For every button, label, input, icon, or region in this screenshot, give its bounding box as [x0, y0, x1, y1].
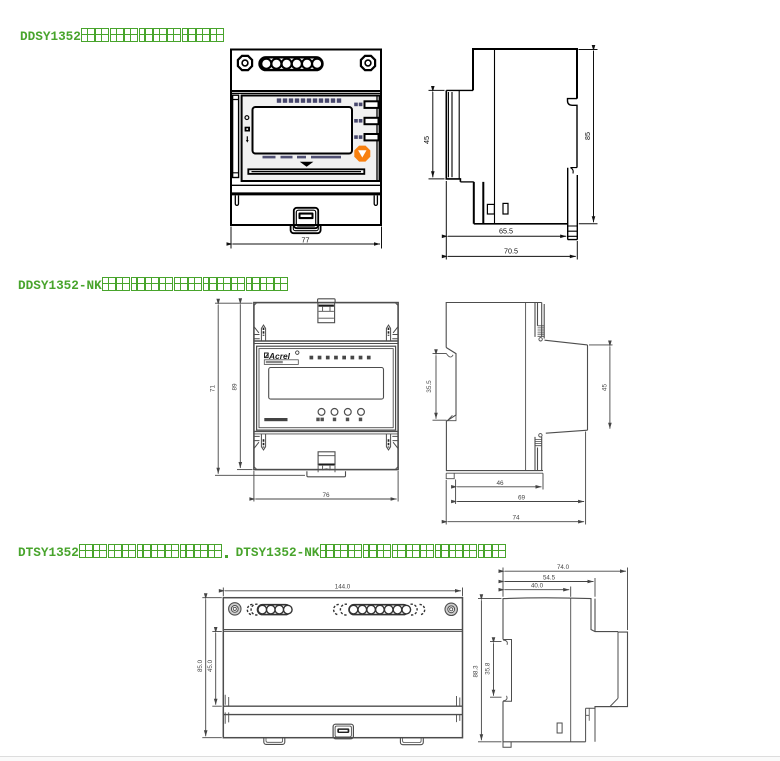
svg-text:46: 46 — [496, 480, 504, 487]
svg-text:85.0: 85.0 — [197, 659, 204, 672]
svg-text:88.3: 88.3 — [472, 665, 479, 678]
svg-text:45: 45 — [422, 136, 431, 144]
svg-text:77: 77 — [302, 236, 310, 245]
svg-text:54.5: 54.5 — [543, 574, 556, 581]
svg-text:74: 74 — [512, 515, 520, 522]
svg-text:35.5: 35.5 — [426, 380, 433, 393]
svg-text:69: 69 — [518, 495, 526, 502]
svg-text:76: 76 — [322, 492, 330, 499]
svg-text:35.8: 35.8 — [485, 662, 492, 675]
svg-text:70.5: 70.5 — [504, 247, 518, 256]
svg-text:85: 85 — [583, 132, 592, 140]
svg-text:45: 45 — [601, 384, 608, 392]
svg-text:74.0: 74.0 — [557, 564, 570, 571]
svg-text:144.0: 144.0 — [335, 584, 351, 591]
svg-text:40.0: 40.0 — [531, 583, 544, 590]
svg-text:45.0: 45.0 — [207, 659, 214, 672]
svg-text:89: 89 — [232, 383, 239, 391]
svg-text:65.5: 65.5 — [499, 227, 513, 236]
svg-text:71: 71 — [210, 385, 217, 393]
